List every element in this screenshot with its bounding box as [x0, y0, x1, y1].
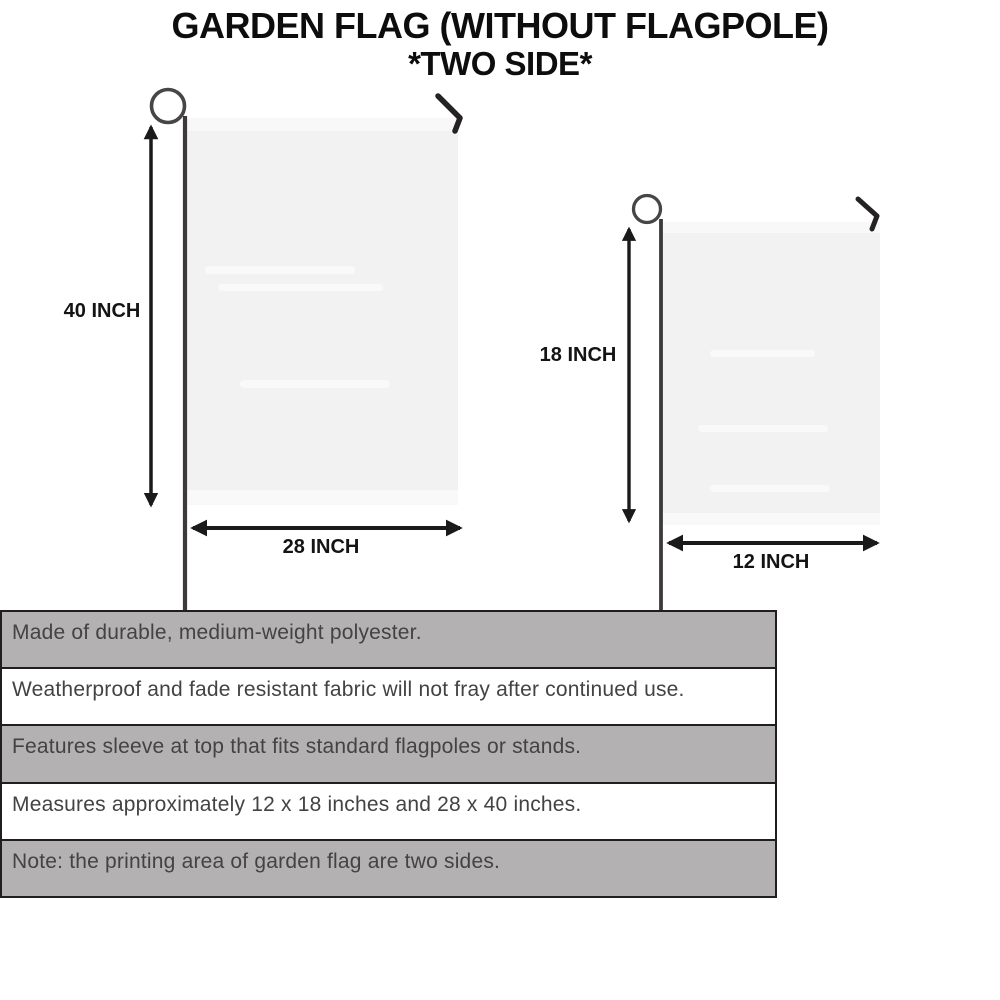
small-flag-diagram: 18 INCH 12 INCH	[520, 185, 900, 615]
spec-row-text: Features sleeve at top that fits standar…	[2, 726, 775, 759]
flag-bottom-band	[662, 513, 880, 525]
fabric-fold-highlight	[240, 380, 390, 388]
spec-row-text: Note: the printing area of garden flag a…	[2, 841, 775, 874]
flag-panel-small	[662, 222, 880, 525]
width-dimension-label: 28 INCH	[283, 536, 360, 558]
garden-flag-infographic: GARDEN FLAG (WITHOUT FLAGPOLE) *TWO SIDE…	[0, 0, 1000, 1000]
spec-row-sleeve: Features sleeve at top that fits standar…	[2, 726, 775, 783]
spec-row-text: Measures approximately 12 x 18 inches an…	[2, 784, 775, 817]
large-flag-diagram: 40 INCH 28 INCH	[40, 80, 480, 615]
spec-row-text: Weatherproof and fade resistant fabric w…	[2, 669, 775, 702]
fabric-fold-highlight	[698, 425, 828, 432]
width-dimension-label: 12 INCH	[733, 551, 810, 573]
spec-row-text: Made of durable, medium-weight polyester…	[2, 612, 775, 645]
spec-row-weatherproof: Weatherproof and fade resistant fabric w…	[2, 669, 775, 726]
pole-loop-icon	[634, 196, 661, 223]
spec-row-measurements: Measures approximately 12 x 18 inches an…	[2, 784, 775, 841]
flag-sleeve-band	[187, 118, 458, 131]
flag-sleeve-band	[662, 222, 880, 233]
spec-table: Made of durable, medium-weight polyester…	[0, 610, 777, 898]
spec-row-note: Note: the printing area of garden flag a…	[2, 841, 775, 896]
fabric-fold-highlight	[710, 350, 815, 357]
title-line-1: GARDEN FLAG (WITHOUT FLAGPOLE)	[0, 6, 1000, 46]
height-dimension-label: 40 INCH	[64, 300, 141, 322]
pole-loop-icon	[152, 90, 185, 123]
fabric-fold-highlight	[205, 266, 355, 274]
title-line-2: *TWO SIDE*	[0, 46, 1000, 83]
flag-bottom-band	[187, 490, 458, 505]
page-title: GARDEN FLAG (WITHOUT FLAGPOLE) *TWO SIDE…	[0, 6, 1000, 83]
flag-panel-large	[187, 118, 458, 505]
height-dimension-label: 18 INCH	[540, 344, 617, 366]
fabric-fold-highlight	[710, 485, 830, 492]
fabric-fold-highlight	[218, 284, 383, 291]
spec-row-material: Made of durable, medium-weight polyester…	[2, 612, 775, 669]
